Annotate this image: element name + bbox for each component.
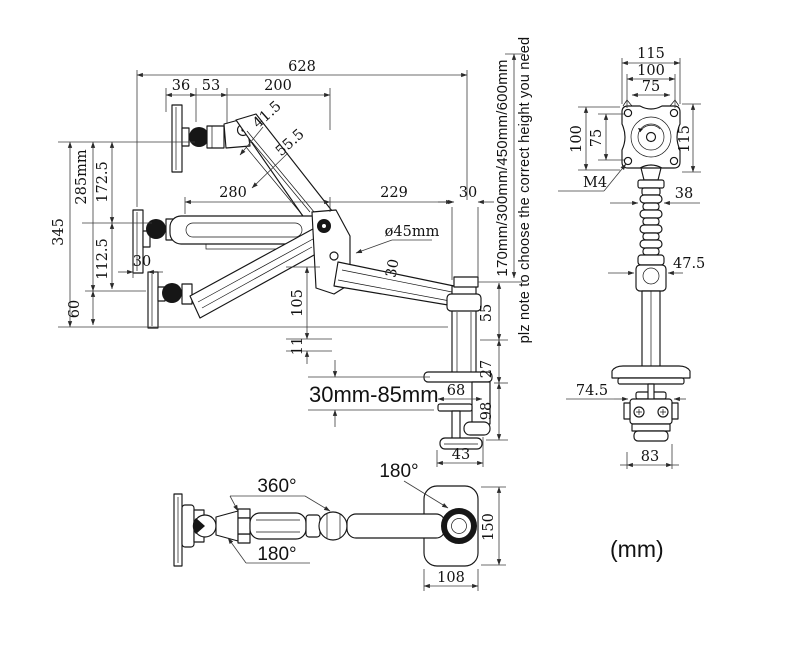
dim-36: 36 [172,78,190,94]
dim-41-5: 41.5 [250,98,285,132]
dim-60: 60 [67,300,83,318]
dim-68: 68 [447,383,465,399]
dim-30-arm-thickness: 30 [384,258,403,279]
ball-joint-middle [146,219,166,239]
ball-joint-raised [189,127,209,147]
dim-100-top: 100 [637,63,665,79]
base-front [612,366,690,441]
ball-joint-lowered [162,283,182,303]
height-options-label: 170mm/300mm/450mm/600mm [494,59,511,276]
dim-53: 53 [202,78,220,94]
top-view: 360° 180° 180° 150 108 [174,461,506,591]
label-m4-thread: M4 [583,175,607,191]
dim-100-left: 100 [569,125,585,153]
dim-628: 628 [288,59,316,75]
arm-segment-1-top [250,513,306,539]
dim-200: 200 [264,78,292,94]
units-label: (mm) [610,536,664,562]
dim-47-5: 47.5 [673,256,705,272]
dim-74-5: 74.5 [576,383,608,399]
vesa-hole-bottom-right [670,157,677,164]
rotation-360-label: 360° [257,476,296,497]
dim-30-plate-offset: 30 [133,254,151,270]
dim-75-top: 75 [642,79,660,95]
pole-side [447,277,481,374]
height-note: 170mm/300mm/450mm/600mm plz note to choo… [494,37,533,344]
dim-112-5: 112.5 [95,238,111,280]
vesa-hole-bottom-left [624,157,631,164]
dim-105: 105 [290,289,306,317]
pole-front [636,168,666,367]
dim-83: 83 [641,449,659,465]
rotation-180-top-label: 180° [379,461,418,482]
dim-30-pole-top: 30 [459,185,477,201]
vesa-hole-top-left [624,109,631,116]
clamp-range-label: 30mm-85mm [309,382,439,407]
dim-55: 55 [479,304,495,322]
front-view: 115 100 75 100 75 115 M4 38 47.5 74.5 83 [558,46,705,469]
dim-115-right: 115 [677,125,693,153]
dim-285mm: 285mm [74,149,90,204]
side-view: 628 36 53 200 41.5 55.5 345 285mm 172.5 … [51,54,523,467]
dim-98: 98 [479,402,495,420]
dim-345: 345 [51,218,67,246]
height-choice-note: plz note to choose the correct height yo… [517,37,533,344]
dim-27: 27 [479,360,495,378]
arm-segment-2-top [347,514,445,538]
dim-115-top: 115 [637,46,665,62]
vesa-plate [622,100,680,168]
dim-43: 43 [452,447,470,463]
mid-joint-top [319,512,347,540]
dim-75-left: 75 [589,129,605,147]
dim-108: 108 [437,570,465,586]
drawing-canvas: 628 36 53 200 41.5 55.5 345 285mm 172.5 … [0,0,790,646]
monitor-arm-dimension-drawing: 628 36 53 200 41.5 55.5 345 285mm 172.5 … [0,0,790,646]
dim-150: 150 [481,513,497,541]
vesa-hole-top-right [670,109,677,116]
dim-55-5: 55.5 [273,126,308,160]
dim-172-5: 172.5 [95,161,111,203]
dim-11: 11 [290,337,306,355]
dim-pole-diameter: ø45mm [385,224,440,240]
rotation-180-bottom-label: 180° [257,544,296,565]
dim-229: 229 [380,185,408,201]
dim-280: 280 [219,185,247,201]
dim-38: 38 [675,186,693,202]
